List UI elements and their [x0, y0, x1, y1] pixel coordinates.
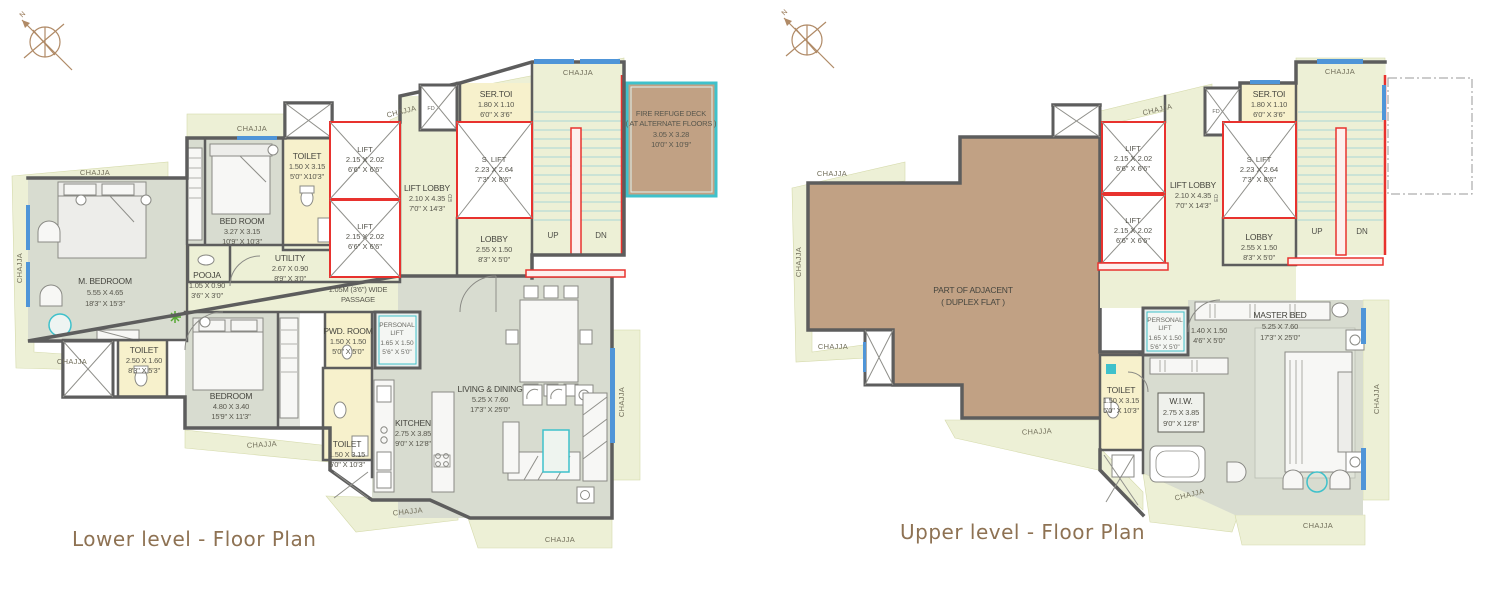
stair-divider	[571, 128, 581, 255]
room-dim: 1.50 X 1.50	[330, 337, 366, 346]
room-dim: 2.10 X 4.35	[409, 194, 445, 203]
personal-lift-dim: 5'6" X 5'0"	[1150, 344, 1180, 351]
room-label-sertoi: SER.TOI	[480, 89, 512, 99]
upper-floor-plan: CHAJJA CHAJJA CHAJJA CHAJJA CHAJJA CHAJJ…	[792, 58, 1472, 545]
stairs-up-label: UP	[1311, 227, 1322, 236]
personal-lift-dim: 1.65 X 1.50	[380, 340, 414, 347]
chajja-label: CHAJJA	[237, 124, 267, 133]
room-dim: 5'0" X10'3"	[290, 172, 324, 181]
room-dim: 2.75 X 3.85	[395, 429, 431, 438]
floor-plan-sheet: CHAJJA CHAJJA CHAJJA CHAJJA CHAJJA CHAJJ…	[0, 0, 1500, 600]
slift-label: S. LIFT	[482, 155, 507, 164]
refuge-deck-dashed-outline	[1388, 78, 1472, 194]
personal-lift-label: PERSONAL	[379, 322, 415, 329]
lobby-dim-label: 4'6" X 5'0"	[1193, 336, 1225, 345]
room-dim: 15'9" X 11'3"	[211, 412, 251, 421]
room-dim: 2.50 X 1.60	[126, 356, 162, 365]
fd-duct-label: FD	[427, 106, 434, 112]
lift2-label: LIFT	[1125, 216, 1141, 225]
room-label-pooja: POOJA	[193, 270, 221, 280]
slift-dim: 7'3" X 8'6"	[1242, 175, 1276, 184]
room-dim: 8'9" X 3'0"	[274, 274, 306, 283]
room-dim: 9'0" X 12'8"	[395, 439, 431, 448]
room-dim: 5'0" X 10'3"	[1103, 406, 1139, 415]
stairs-up-label: UP	[547, 231, 558, 240]
room-dim: 2.67 X 0.90	[272, 264, 308, 273]
room-dim: 5.25 X 7.60	[1262, 322, 1298, 331]
lift2-dim: 6'6" X 6'6"	[1116, 236, 1150, 245]
slift-label: S. LIFT	[1247, 155, 1272, 164]
room-label-upper-toilet: TOILET	[1107, 385, 1135, 395]
room-dim: 3'6" X 3'0"	[191, 291, 223, 300]
chajja-label: CHAJJA	[15, 253, 24, 283]
room-dim: 1.05 X 0.90	[189, 281, 225, 290]
chajja-label: CHAJJA	[80, 168, 110, 177]
adjacent-flat-label: PART OF ADJACENT	[933, 285, 1012, 295]
room-dim: 5'0" X 5'0"	[332, 347, 364, 356]
room-dim: 17'3" X 25'0"	[470, 405, 510, 414]
chajja-label: CHAJJA	[1372, 384, 1381, 414]
lift1-dim: 6'6" X 6'6"	[348, 165, 382, 174]
lift1-dim: 2.15 X 2.02	[1114, 154, 1152, 163]
room-label-master-bed: MASTER BED	[1253, 310, 1306, 320]
room-label-toilet-mid: TOILET	[130, 345, 158, 355]
room-dim: 8'3" X 5'0"	[478, 255, 510, 264]
chajja-label: CHAJJA	[1303, 521, 1333, 530]
passage-label: 1.05M (3'6") WIDE	[329, 285, 388, 294]
room-dim: 2.75 X 3.85	[1163, 408, 1199, 417]
room-dim: 1.80 X 1.10	[478, 100, 514, 109]
lower-floor-plan: CHAJJA CHAJJA CHAJJA CHAJJA CHAJJA CHAJJ…	[12, 58, 717, 551]
room-label-pwd: PWD. ROOM	[323, 326, 372, 336]
room-dim: 2.55 X 1.50	[1241, 243, 1277, 252]
fire-deck-label: FIRE REFUGE DECK	[636, 109, 706, 118]
room-dim: 17'3" X 25'0"	[1260, 333, 1300, 342]
room-label-bedroom: BEDROOM	[210, 391, 253, 401]
room-label-lift-lobby: LIFT LOBBY	[1170, 180, 1217, 190]
lift2-dim: 2.15 X 2.02	[1114, 226, 1152, 235]
passage-label: PASSAGE	[341, 295, 375, 304]
lift2-dim: 6'6" X 6'6"	[348, 242, 382, 251]
chajja-label: CHAJJA	[57, 357, 87, 366]
lift2-dim: 2.15 X 2.02	[346, 232, 384, 241]
pooja-symbol	[198, 255, 214, 265]
room-dim: 1.80 X 1.10	[1251, 100, 1287, 109]
lift1-label: LIFT	[357, 145, 373, 154]
room-label-utility: UTILITY	[275, 253, 306, 263]
room-dim: 1.50 X 3.15	[329, 450, 365, 459]
room-dim: 9'0" X 12'8"	[1163, 419, 1199, 428]
room-dim: 7'0" X 14'3"	[409, 204, 445, 213]
room-dim: 3.27 X 3.15	[224, 227, 260, 236]
room-dim: 1.50 X 3.15	[1103, 396, 1139, 405]
lift1-label: LIFT	[1125, 144, 1141, 153]
room-dim: 5.25 X 7.60	[472, 395, 508, 404]
room-dim: 8'3" X 5'0"	[1243, 253, 1275, 262]
personal-lift-dim: 5'6" X 5'0"	[382, 349, 412, 356]
north-label: N	[781, 9, 790, 18]
room-label-lobby: LOBBY	[1245, 232, 1273, 242]
upper-plan-title: Upper level - Floor Plan	[900, 520, 1145, 544]
personal-lift-label: PERSONAL	[1147, 317, 1183, 324]
room-dim: 5.55 X 4.65	[87, 288, 123, 297]
fire-deck-dim: 3.05 X 3.28	[653, 130, 689, 139]
room-label-lift-lobby: LIFT LOBBY	[404, 183, 451, 193]
personal-lift-dim: 1.65 X 1.50	[1148, 335, 1182, 342]
lift1-dim: 2.15 X 2.02	[346, 155, 384, 164]
north-compass-upper: N	[781, 9, 834, 68]
room-label-toilet-kitchen: TOILET	[333, 439, 361, 449]
slift-dim: 2.23 X 2.64	[475, 165, 513, 174]
room-dim: 6'0" X 3'6"	[1253, 110, 1285, 119]
room-dim: 18'3" X 15'3"	[85, 299, 125, 308]
chajja-label: CHAJJA	[1325, 67, 1355, 76]
ed-duct-label: ED	[1214, 194, 1220, 202]
fire-deck-label: ( AT ALTERNATE FLOORS )	[626, 119, 717, 128]
room-dim: 2.55 X 1.50	[476, 245, 512, 254]
room-label-m-bedroom: M. BEDROOM	[78, 276, 132, 286]
room-label-toilet-top: TOILET	[293, 151, 321, 161]
room-dim: 4.80 X 3.40	[213, 402, 249, 411]
lift1-dim: 6'6" X 6'6"	[1116, 164, 1150, 173]
fd-duct-label: FD	[1212, 109, 1219, 115]
room-label-kitchen: KITCHEN	[395, 418, 431, 428]
slift-dim: 2.23 X 2.64	[1240, 165, 1278, 174]
chajja-label: CHAJJA	[617, 387, 626, 417]
north-compass-lower: N	[19, 11, 72, 70]
chajja-label: CHAJJA	[794, 247, 803, 277]
lobby-dim-label: 1.40 X 1.50	[1191, 326, 1227, 335]
room-label-bed-room: BED ROOM	[220, 216, 265, 226]
room-dim: 1.50 X 3.15	[289, 162, 325, 171]
fire-deck-dim: 10'0" X 10'9"	[651, 140, 691, 149]
room-label-wiw: W.I.W.	[1169, 396, 1192, 406]
lower-plan-title: Lower level - Floor Plan	[72, 527, 316, 551]
stairs-dn-label: DN	[595, 231, 607, 240]
room-dim: 7'0" X 14'3"	[1175, 201, 1211, 210]
room-dim: 2.10 X 4.35	[1175, 191, 1211, 200]
chajja-label: CHAJJA	[1022, 426, 1053, 437]
room-dim: 5'0" X 10'3"	[329, 460, 365, 469]
personal-lift-label: LIFT	[1158, 325, 1171, 332]
chajja-label: CHAJJA	[817, 169, 847, 178]
slift-dim: 7'3" X 8'6"	[477, 175, 511, 184]
north-label: N	[19, 11, 28, 20]
room-dim: 6'0" X 3'6"	[480, 110, 512, 119]
chajja-label: CHAJJA	[545, 535, 575, 544]
stairs-dn-label: DN	[1356, 227, 1368, 236]
personal-lift-label: LIFT	[390, 330, 403, 337]
main-entrance-door	[334, 472, 368, 498]
floor-plans-svg: CHAJJA CHAJJA CHAJJA CHAJJA CHAJJA CHAJJ…	[0, 0, 1500, 600]
room-label-lobby: LOBBY	[480, 234, 508, 244]
room-dim: 8'3" X 5'3"	[128, 366, 160, 375]
adjacent-flat-label: ( DUPLEX FLAT )	[941, 297, 1005, 307]
room-label-living: LIVING & DINING	[457, 384, 522, 394]
chajja-label: CHAJJA	[818, 342, 848, 351]
room-label-sertoi: SER.TOI	[1253, 89, 1285, 99]
chajja-label: CHAJJA	[563, 68, 593, 77]
lift2-label: LIFT	[357, 222, 373, 231]
ed-duct-label: ED	[448, 194, 454, 202]
room-dim: 10'9" X 10'3"	[222, 237, 262, 246]
stair-divider	[1336, 128, 1346, 255]
